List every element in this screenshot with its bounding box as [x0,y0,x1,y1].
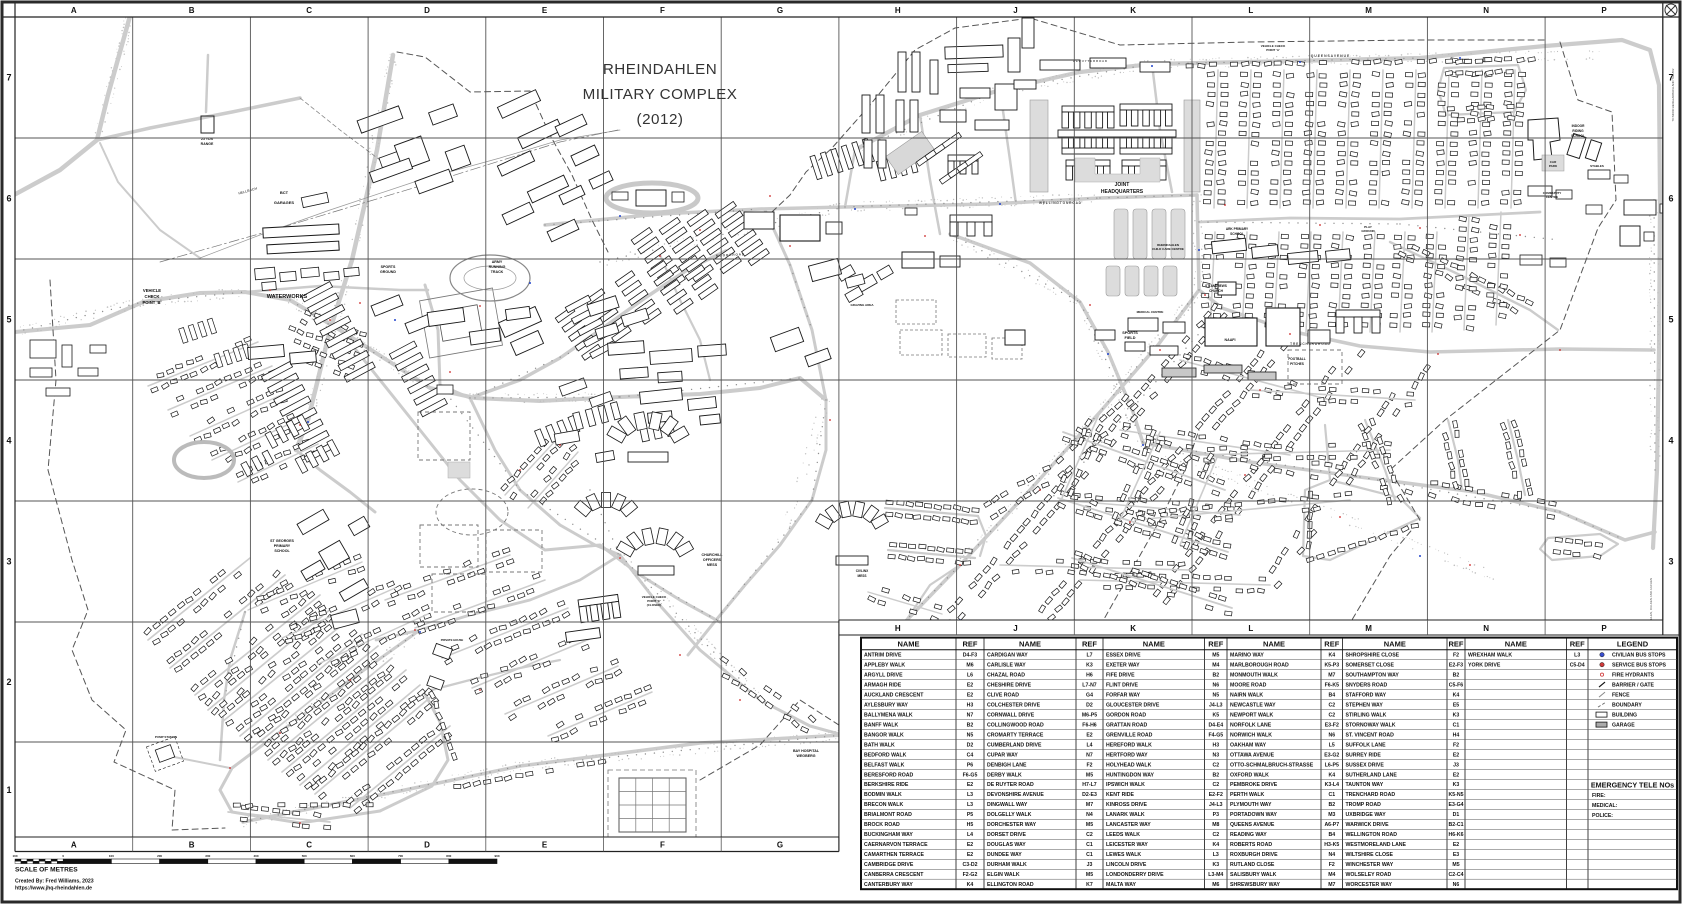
svg-text:REF: REF [1449,640,1464,649]
svg-text:AUCKLAND CRESCENT: AUCKLAND CRESCENT [864,692,924,698]
svg-text:FLINT DRIVE: FLINT DRIVE [1106,682,1139,688]
svg-text:CHURCHILL: CHURCHILL [702,553,724,557]
svg-text:WARWICK DRIVE: WARWICK DRIVE [1346,822,1390,828]
svg-text:LEWES WALK: LEWES WALK [1106,852,1141,858]
svg-text:H: H [895,624,901,633]
svg-text:INDOOR: INDOOR [1572,124,1585,128]
svg-text:H3-K5: H3-K5 [1324,842,1339,848]
svg-text:DOUGLAS WAY: DOUGLAS WAY [987,842,1026,848]
svg-text:CIVILIAN BUS STOPS: CIVILIAN BUS STOPS [1612,653,1666,659]
svg-text:TAUNTON WAY: TAUNTON WAY [1346,782,1384,788]
svg-text:400: 400 [253,854,258,858]
svg-text:M5: M5 [1212,653,1219,659]
svg-text:K4: K4 [1328,653,1335,659]
svg-text:CHAZAL ROAD: CHAZAL ROAD [987,673,1025,679]
svg-text:GARAGE: GARAGE [1612,723,1635,729]
svg-text:VEHICLE: VEHICLE [143,288,161,293]
svg-text:L: L [1248,624,1253,633]
svg-text:REF: REF [963,640,978,649]
svg-text:K4: K4 [1328,772,1335,778]
svg-text:BARRIER / GATE: BARRIER / GATE [1612,683,1655,689]
svg-text:E3-G2: E3-G2 [1324,752,1339,758]
svg-text:M4: M4 [1212,663,1219,669]
svg-text:UXBRIDGE WAY: UXBRIDGE WAY [1346,812,1387,818]
svg-text:MALTA WAY: MALTA WAY [1106,882,1137,888]
svg-text:P5: P5 [967,812,973,818]
svg-text:E3-F2: E3-F2 [1325,722,1339,728]
svg-text:PEMBROKE DRIVE: PEMBROKE DRIVE [1230,782,1278,788]
svg-text:H3: H3 [1212,742,1219,748]
svg-text:LEICESTER WAY: LEICESTER WAY [1106,842,1148,848]
svg-text:TRACK: TRACK [491,270,504,274]
svg-text:CUPAR WAY: CUPAR WAY [987,752,1018,758]
svg-text:C4: C4 [967,752,974,758]
svg-text:M: M [1365,6,1372,15]
svg-text:MOORE ROAD: MOORE ROAD [1230,682,1267,688]
svg-text:NAME: NAME [897,640,919,649]
svg-text:L7: L7 [1086,653,1092,659]
svg-text:D2-E3: D2-E3 [1082,792,1097,798]
svg-text:4: 4 [6,436,11,446]
svg-text:L3: L3 [1574,653,1580,659]
svg-text:B4: B4 [1328,692,1335,698]
svg-text:L3: L3 [1213,852,1219,858]
svg-text:F6-K5: F6-K5 [1325,682,1340,688]
svg-text:OTTAWA AVENUE: OTTAWA AVENUE [1230,752,1275,758]
svg-text:G: G [777,841,783,850]
svg-text:F2: F2 [1453,742,1459,748]
svg-text:3: 3 [6,557,11,567]
svg-text:J3: J3 [1453,762,1459,768]
svg-text:C1: C1 [1453,722,1460,728]
svg-text:TO MONCHENGLADBACH AND THE A52: TO MONCHENGLADBACH AND THE A52 [1671,68,1675,121]
svg-text:E2: E2 [967,782,973,788]
svg-text:TRENCHARD ROAD: TRENCHARD ROAD [1346,792,1396,798]
svg-text:D E R U Y T E R R O A D: D E R U Y T E R R O A D [1073,59,1108,63]
svg-text:3: 3 [1668,557,1673,567]
svg-text:L5: L5 [1329,742,1335,748]
svg-text:C2: C2 [1086,832,1093,838]
svg-text:FIFE DRIVE: FIFE DRIVE [1106,673,1135,679]
svg-text:PRIVATE HOUSE: PRIVATE HOUSE [441,638,464,642]
svg-text:B: B [189,841,195,850]
svg-text:PUMP STATION: PUMP STATION [155,735,177,739]
svg-text:SUTHERLAND LANE: SUTHERLAND LANE [1346,772,1398,778]
svg-text:REF: REF [1208,640,1223,649]
svg-text:BUCKINGHAM WAY: BUCKINGHAM WAY [864,832,913,838]
svg-text:QUEENS AVENUE: QUEENS AVENUE [1230,822,1275,828]
svg-text:K3-L4: K3-L4 [1325,782,1340,788]
svg-text:POINT 'B': POINT 'B' [143,300,162,305]
svg-text:J4-L3: J4-L3 [1209,802,1223,808]
svg-text:WELLINGTON ROAD: WELLINGTON ROAD [1346,832,1398,838]
svg-text:SCHOOL: SCHOOL [1571,134,1585,138]
svg-text:ROXBURGH DRIVE: ROXBURGH DRIVE [1230,852,1278,858]
svg-text:BROCK ROAD: BROCK ROAD [864,822,900,828]
svg-text:LANCASTER WAY: LANCASTER WAY [1106,822,1151,828]
svg-text:SERVICE BUS STOPS: SERVICE BUS STOPS [1612,663,1667,669]
svg-text:GRATTAN ROAD: GRATTAN ROAD [1106,722,1148,728]
svg-text:SUSSEX DRIVE: SUSSEX DRIVE [1346,762,1385,768]
svg-text:H5: H5 [967,822,974,828]
svg-text:LINCOLN DRIVE: LINCOLN DRIVE [1106,862,1147,868]
svg-text:K4: K4 [1453,692,1460,698]
svg-text:N6: N6 [1212,682,1219,688]
svg-text:C2: C2 [1212,832,1219,838]
svg-text:WORCESTER WAY: WORCESTER WAY [1346,882,1393,888]
svg-text:GLOUCESTER DRIVE: GLOUCESTER DRIVE [1106,702,1160,708]
svg-text:F6-G5: F6-G5 [963,772,978,778]
svg-text:E3: E3 [1453,852,1459,858]
svg-text:HERTFORD WAY: HERTFORD WAY [1106,752,1148,758]
svg-text:RHEINDAHLEN: RHEINDAHLEN [603,61,717,78]
svg-text:SCHOOL: SCHOOL [1230,232,1244,236]
svg-text:B: B [189,6,195,15]
svg-text:RUNNING: RUNNING [489,265,506,269]
svg-text:CARLISLE WAY: CARLISLE WAY [987,663,1026,669]
svg-text:P6: P6 [967,762,973,768]
svg-text:AYLESBURY WAY: AYLESBURY WAY [864,702,909,708]
svg-text:ELLINGTON ROAD: ELLINGTON ROAD [987,882,1034,888]
svg-text:F2-G2: F2-G2 [963,872,978,878]
svg-text:DEVONSHIRE AVENUE: DEVONSHIRE AVENUE [987,792,1044,798]
svg-text:6: 6 [6,194,11,204]
svg-text:WREXHAM WALK: WREXHAM WALK [1468,653,1512,659]
svg-text:FENCE: FENCE [1612,693,1630,699]
svg-text:MONMOUTH WALK: MONMOUTH WALK [1230,673,1278,679]
svg-text:Q U E E N S A V E N U E: Q U E E N S A V E N U E [1311,54,1350,58]
svg-text:COLCHESTER DRIVE: COLCHESTER DRIVE [987,702,1041,708]
svg-text:CARDIGAN WAY: CARDIGAN WAY [987,653,1028,659]
svg-text:H6: H6 [1086,673,1093,679]
svg-text:DUNDEE WAY: DUNDEE WAY [987,852,1022,858]
svg-text:STORNOWAY WALK: STORNOWAY WALK [1346,722,1396,728]
svg-text:M5: M5 [1086,772,1093,778]
svg-text:GORDON ROAD: GORDON ROAD [1106,712,1146,718]
svg-text:OXFORD WALK: OXFORD WALK [1230,772,1269,778]
svg-text:MEDICAL:: MEDICAL: [1592,803,1618,809]
svg-text:K3: K3 [1453,782,1460,788]
svg-text:B2: B2 [967,722,974,728]
svg-text:N7: N7 [967,712,974,718]
svg-text:2: 2 [6,677,11,687]
svg-text:J4-L3: J4-L3 [1209,702,1223,708]
svg-text:N: N [1483,6,1489,15]
svg-text:C2: C2 [1212,762,1219,768]
svg-text:C3-D2: C3-D2 [963,862,978,868]
svg-text:F2: F2 [1453,653,1459,659]
svg-text:P3: P3 [1213,812,1219,818]
svg-text:C2-C4: C2-C4 [1449,872,1464,878]
svg-text:BRECON WALK: BRECON WALK [864,802,903,808]
svg-text:GRENVILLE ROAD: GRENVILLE ROAD [1106,732,1153,738]
svg-text:K4: K4 [967,882,974,888]
svg-text:ARMAGH RIDE: ARMAGH RIDE [864,682,902,688]
svg-text:NORWICH WALK: NORWICH WALK [1230,732,1272,738]
svg-text:L6: L6 [967,673,973,679]
svg-text:A: A [71,841,77,850]
svg-text:C2: C2 [1328,702,1335,708]
svg-text:CHILD CARE CENTRE: CHILD CARE CENTRE [1152,247,1184,251]
svg-text:C1: C1 [1086,842,1093,848]
svg-text:D2: D2 [1086,702,1093,708]
svg-text:K5: K5 [1212,712,1219,718]
svg-text:FIRE:: FIRE: [1592,793,1606,799]
svg-text:NAIRN WALK: NAIRN WALK [1230,692,1263,698]
svg-text:M8: M8 [1212,822,1219,828]
svg-text:C: C [306,841,312,850]
svg-text:GROUND: GROUND [1361,229,1375,233]
svg-text:900: 900 [494,854,499,858]
svg-text:BERESFORD ROAD: BERESFORD ROAD [864,772,914,778]
svg-text:DENBIGH LANE: DENBIGH LANE [987,762,1027,768]
svg-text:E2: E2 [1453,752,1459,758]
svg-text:H4: H4 [1453,732,1460,738]
svg-text:ST GEORGES: ST GEORGES [270,539,294,543]
svg-text:K4: K4 [1212,842,1219,848]
svg-text:E2: E2 [967,852,973,858]
svg-text:M7: M7 [1328,882,1335,888]
svg-text:BEDFORD WALK: BEDFORD WALK [864,752,907,758]
svg-text:CANTERBURY WAY: CANTERBURY WAY [864,882,913,888]
svg-text:E2: E2 [967,692,973,698]
svg-text:IPSWICH WALK: IPSWICH WALK [1106,782,1145,788]
svg-text:1: 1 [6,785,11,795]
svg-text:DORCHESTER WAY: DORCHESTER WAY [987,822,1037,828]
svg-text:REF: REF [1082,640,1097,649]
svg-text:SPORTS: SPORTS [381,265,396,269]
svg-text:SHROPSHIRE CLOSE: SHROPSHIRE CLOSE [1346,653,1400,659]
svg-text:(CLOSED): (CLOSED) [647,603,662,607]
svg-text:D4-E4: D4-E4 [1208,722,1223,728]
svg-text:CAMARTHEN TERRACE: CAMARTHEN TERRACE [864,852,924,858]
svg-text:BCT: BCT [280,190,289,195]
svg-text:D: D [424,841,430,850]
svg-text:L3: L3 [967,802,973,808]
svg-text:H3: H3 [967,702,974,708]
svg-text:H6-K6: H6-K6 [1449,832,1464,838]
svg-text:J: J [1013,6,1017,15]
svg-text:YORK DRIVE: YORK DRIVE [1468,663,1501,669]
svg-text:700: 700 [398,854,403,858]
svg-text:800: 800 [446,854,451,858]
svg-text:A6-P7: A6-P7 [1324,822,1339,828]
svg-text:SURREY RIDE: SURREY RIDE [1346,752,1382,758]
svg-text:POLICE:: POLICE: [1592,813,1613,819]
svg-text:CROMARTY TERRACE: CROMARTY TERRACE [987,732,1044,738]
svg-text:L4: L4 [967,832,973,838]
svg-text:M5: M5 [1086,822,1093,828]
svg-text:ROBERTS ROAD: ROBERTS ROAD [1230,842,1272,848]
svg-text:7: 7 [6,73,11,83]
svg-text:BANFF WALK: BANFF WALK [864,722,899,728]
svg-text:RANGE: RANGE [201,142,214,146]
svg-text:CHECK: CHECK [145,294,160,299]
svg-text:K5-N5: K5-N5 [1449,792,1464,798]
svg-text:BUILDING: BUILDING [1612,713,1637,719]
svg-text:C1: C1 [1086,852,1093,858]
svg-text:NAME: NAME [1019,640,1041,649]
svg-text:300: 300 [205,854,210,858]
svg-text:SOMERSET CLOSE: SOMERSET CLOSE [1346,663,1395,669]
svg-text:K7: K7 [1086,882,1093,888]
svg-text:HEREFORD WALK: HEREFORD WALK [1106,742,1152,748]
svg-text:CHESHIRE DRIVE: CHESHIRE DRIVE [987,682,1032,688]
svg-text:PRIMARY: PRIMARY [274,544,291,548]
svg-text:FORFAR WAY: FORFAR WAY [1106,692,1141,698]
svg-text:M: M [1365,624,1372,633]
svg-text:BOUNDARY: BOUNDARY [1612,703,1642,709]
svg-text:SOUTHAMPTON WAY: SOUTHAMPTON WAY [1346,673,1400,679]
svg-text:GROUND: GROUND [380,270,396,274]
svg-text:D4-F3: D4-F3 [963,653,978,659]
svg-text:BAY HOSPITAL: BAY HOSPITAL [793,749,820,753]
svg-text:JOINT: JOINT [1115,182,1130,188]
svg-text:FOOTBALL: FOOTBALL [1288,357,1305,361]
svg-text:CANBERRA CRESCENT: CANBERRA CRESCENT [864,872,924,878]
svg-text:WILTSHIRE CLOSE: WILTSHIRE CLOSE [1346,852,1394,858]
svg-text:READING WAY: READING WAY [1230,832,1267,838]
svg-text:N5: N5 [967,732,974,738]
svg-text:HUNTINGDON WAY: HUNTINGDON WAY [1106,772,1154,778]
svg-text:SALISBURY WALK: SALISBURY WALK [1230,872,1277,878]
svg-text:MEDICAL CENTRE: MEDICAL CENTRE [1137,310,1164,314]
svg-text:REF: REF [1324,640,1339,649]
svg-text:WOLSELEY ROAD: WOLSELEY ROAD [1346,872,1392,878]
svg-text:WEGBERG: WEGBERG [797,754,816,758]
svg-text:K3: K3 [1453,712,1460,718]
svg-text:DINGWALL WAY: DINGWALL WAY [987,802,1028,808]
svg-text:L4: L4 [1086,742,1092,748]
svg-text:DURHAM WALK: DURHAM WALK [987,862,1027,868]
svg-text:B2: B2 [1212,772,1219,778]
svg-text:SCHOOL: SCHOOL [274,549,290,553]
svg-text:E: E [542,841,548,850]
svg-text:F2: F2 [1329,862,1335,868]
svg-text:J3: J3 [1087,862,1093,868]
svg-text:EMERGENCY TELE NOs: EMERGENCY TELE NOs [1591,780,1674,789]
svg-text:N7: N7 [1086,752,1093,758]
svg-text:LONDONDERRY DRIVE: LONDONDERRY DRIVE [1106,872,1164,878]
svg-text:PITCHES: PITCHES [1290,362,1304,366]
svg-text:ST. ANDREWS: ST. ANDREWS [1205,284,1227,288]
svg-text:EXETER WAY: EXETER WAY [1106,663,1140,669]
svg-text:MILITARY COMPLEX: MILITARY COMPLEX [583,86,738,103]
svg-text:GRAZING AREA: GRAZING AREA [850,303,874,307]
svg-text:N5: N5 [1212,692,1219,698]
svg-text:B4: B4 [1328,832,1335,838]
svg-text:D2: D2 [967,742,974,748]
svg-text:100: 100 [12,854,17,858]
svg-text:B2-C1: B2-C1 [1449,822,1464,828]
svg-text:ARGYLL DRIVE: ARGYLL DRIVE [864,673,903,679]
svg-text:MESS: MESS [707,563,718,567]
svg-text:E2: E2 [967,682,973,688]
svg-text:E2-F2: E2-F2 [1209,792,1223,798]
svg-text:E3-G4: E3-G4 [1449,802,1464,808]
svg-text:OFFICERS: OFFICERS [703,558,722,562]
svg-text:CUMBERLAND DRIVE: CUMBERLAND DRIVE [987,742,1042,748]
svg-text:DE RUYTER ROAD: DE RUYTER ROAD [987,782,1034,788]
svg-text:500: 500 [302,854,307,858]
svg-text:ESSEX DRIVE: ESSEX DRIVE [1106,653,1141,659]
svg-text:E2: E2 [1453,772,1459,778]
svg-text:STEPHEN WAY: STEPHEN WAY [1346,702,1384,708]
svg-text:L6-P5: L6-P5 [1325,762,1339,768]
svg-text:LEGEND: LEGEND [1617,640,1649,649]
svg-text:W E L L I N G T O N R O A D: W E L L I N G T O N R O A D [1039,201,1082,205]
svg-text:APPLEBY WALK: APPLEBY WALK [864,663,905,669]
svg-text:N: N [1483,624,1489,633]
svg-text:N4: N4 [1328,852,1335,858]
svg-text:M3: M3 [1328,812,1335,818]
svg-text:K: K [1130,6,1136,15]
svg-text:K3: K3 [1086,663,1093,669]
svg-text:GARAGES: GARAGES [274,200,295,205]
svg-text:NAME: NAME [1263,640,1285,649]
svg-text:E: E [542,6,548,15]
svg-text:NEWCASTLE WAY: NEWCASTLE WAY [1230,702,1276,708]
svg-text:F6-H6: F6-H6 [1082,722,1097,728]
svg-text:C5-F6: C5-F6 [1449,682,1464,688]
svg-text:NAME: NAME [1384,640,1406,649]
svg-text:M5: M5 [1452,862,1459,868]
svg-text:CIVLINX: CIVLINX [856,569,869,573]
svg-text:F2: F2 [1086,762,1092,768]
svg-text:J: J [1013,624,1017,633]
svg-text:NEWPORT WALK: NEWPORT WALK [1230,712,1273,718]
svg-text:NAME: NAME [1143,640,1165,649]
svg-text:MESS: MESS [857,574,866,578]
svg-text:N3: N3 [1212,752,1219,758]
svg-text:L3-M4: L3-M4 [1208,872,1223,878]
svg-text:FIRE HYDRANTS: FIRE HYDRANTS [1612,673,1655,679]
svg-text:NAME: NAME [1505,640,1527,649]
svg-text:L: L [1248,6,1253,15]
svg-text:PORTADOWN WAY: PORTADOWN WAY [1230,812,1278,818]
svg-text:TROMP ROAD: TROMP ROAD [1346,802,1382,808]
svg-text:BRIALMONT ROAD: BRIALMONT ROAD [864,812,912,818]
svg-text:K: K [1130,624,1136,633]
svg-text:OAKHAM WAY: OAKHAM WAY [1230,742,1267,748]
svg-text:E2-F3: E2-F3 [1449,663,1463,669]
svg-text:M5: M5 [1086,872,1093,878]
svg-text:B2: B2 [1212,673,1219,679]
svg-text:BODMIN WALK: BODMIN WALK [864,792,902,798]
svg-text:FIELD: FIELD [1125,336,1136,340]
svg-text:M4: M4 [1328,872,1335,878]
svg-text:OTTO-SCHMALBRUCH-STRASSE: OTTO-SCHMALBRUCH-STRASSE [1230,762,1314,768]
svg-text:BALLYMENA WALK: BALLYMENA WALK [864,712,913,718]
svg-text:RUTLAND CLOSE: RUTLAND CLOSE [1230,862,1275,868]
svg-text:E5: E5 [1453,702,1459,708]
svg-text:M7: M7 [1086,802,1093,808]
svg-text:WINCHESTER WAY: WINCHESTER WAY [1346,862,1394,868]
svg-text:200: 200 [157,854,162,858]
svg-text:PERTH WALK: PERTH WALK [1230,792,1265,798]
svg-text:BELFAST WALK: BELFAST WALK [864,762,905,768]
svg-text:HEADQUARTERS: HEADQUARTERS [1101,189,1144,195]
svg-text:NORFOLK LANE: NORFOLK LANE [1230,722,1272,728]
svg-text:SHREWSBURY WAY: SHREWSBURY WAY [1230,882,1281,888]
svg-text:K3: K3 [1212,862,1219,868]
svg-text:Created By: Fred Williams, 202: Created By: Fred Williams, 2023 [15,879,94,885]
svg-text:CENTRE: CENTRE [1546,195,1558,199]
svg-text:CHURCH: CHURCH [1209,289,1224,293]
svg-text:600: 600 [350,854,355,858]
svg-text:WATERWORKS: WATERWORKS [267,294,308,300]
svg-text:F4-G5: F4-G5 [1208,732,1223,738]
